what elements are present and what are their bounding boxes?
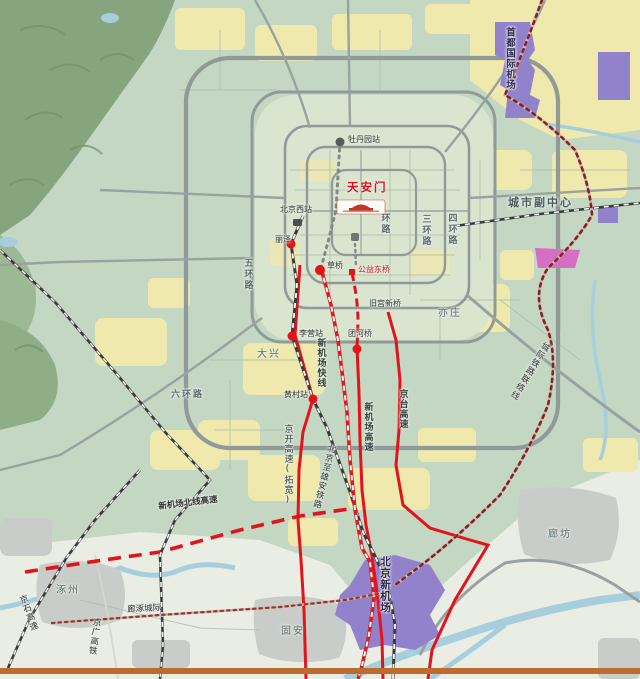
airport-express-line-label: 新机场快线 — [315, 338, 324, 388]
huangcun-station-dot — [309, 395, 318, 404]
tiananmen-icon — [337, 200, 385, 214]
capital-airport-label: 首都国际机场 — [504, 27, 514, 90]
langfang-label: 廊坊 — [548, 530, 572, 541]
beijing-new-airport-map: 天安门 首都国际机场 城市副中心 亦庄 大兴 北京新机场 固安 廊坊 涿州 环路… — [0, 0, 640, 679]
ring2-label: 环路 — [379, 213, 388, 235]
ne-purple-zone — [598, 52, 630, 100]
tuanheqiao-dot — [353, 345, 362, 354]
tiananmen-label: 天安门 — [347, 181, 388, 193]
metro-icon — [351, 233, 359, 241]
langzhuo-intercity-label: 廊涿城际 — [127, 604, 161, 615]
tuanheqiao-label: 团河桥 — [348, 330, 372, 338]
lize-label: 丽泽 — [275, 236, 291, 244]
guan-label: 固安 — [281, 627, 305, 638]
airport-expressway-label: 新机场高速 — [362, 402, 371, 452]
gongyidongqiao-label: 公益东桥 — [358, 266, 390, 274]
ring6-label: 六环路 — [171, 391, 204, 400]
jingtai-expressway-label: 京台高速 — [397, 389, 406, 429]
jiugong-label: 旧宫新桥 — [369, 300, 401, 308]
caoqiao-label: 草桥 — [327, 262, 343, 270]
liying-station-dot — [288, 332, 297, 341]
beijing-west-station-icon — [293, 219, 302, 226]
ring5-label: 五环路 — [242, 258, 251, 291]
daxing-label: 大兴 — [257, 350, 281, 361]
mudanyuan-station-dot — [336, 138, 345, 147]
city-subcenter-label: 城市副中心 — [508, 197, 573, 209]
ring3-label: 三环路 — [420, 214, 429, 247]
beijing-west-label: 北京西站 — [280, 206, 312, 214]
mudanyuan-label: 牡丹园站 — [348, 136, 380, 144]
huangcun-label: 黄村站 — [284, 391, 308, 399]
new-airport-label: 北京新机场 — [379, 556, 390, 614]
jingkai-expressway-label: 京开高速(拓宽) — [282, 424, 291, 506]
caoqiao-station-dot — [315, 265, 325, 275]
gongyidongqiao-dot — [349, 269, 355, 275]
ring4-label: 四环路 — [446, 213, 455, 246]
map-border-bottom — [0, 668, 640, 674]
yizhuang-label: 亦庄 — [438, 309, 462, 320]
zhuozhou-label: 涿州 — [56, 586, 80, 597]
